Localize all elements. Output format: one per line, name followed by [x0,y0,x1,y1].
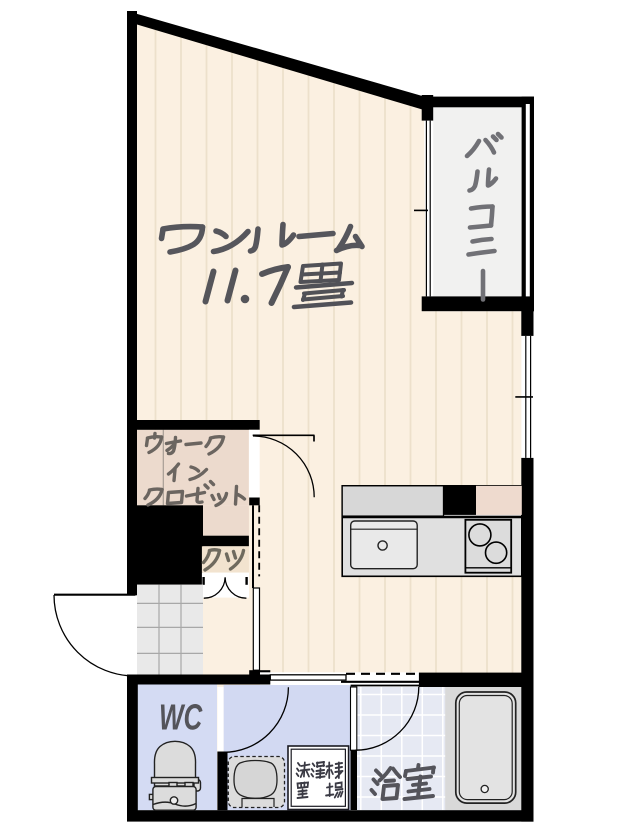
svg-text:WC: WC [159,697,203,737]
